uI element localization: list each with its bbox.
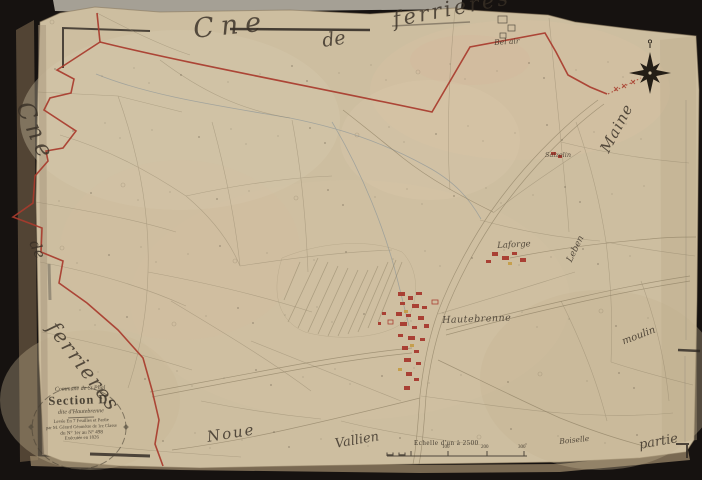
label-commune-left-word2: de <box>26 238 47 261</box>
scale-tick-200: 200 <box>481 445 489 450</box>
label-commune-top-word3: ferrieres <box>391 0 512 31</box>
label-neighbor-partie: partie <box>638 432 679 452</box>
label-commune-top-word1: Cne <box>192 8 269 43</box>
title-cartouche: Commune de St Phal Section D. dite d'Hau… <box>28 384 134 443</box>
scale-tick-100: 100 <box>442 445 450 450</box>
cadastral-map-scan: Cne de ferrieres Cne de ferrieres Maine … <box>0 0 702 480</box>
label-neighbor-moulin: moulin <box>621 326 657 348</box>
label-neighbor-maine: Maine <box>598 102 636 156</box>
label-place-saizelin: Saizelin <box>545 152 571 159</box>
label-neighbor-vallien: Vallien <box>334 430 380 451</box>
cartouche-section-title: Section D. <box>28 392 132 408</box>
label-place-bel-air: Bel air <box>494 37 520 46</box>
label-neighbor-noue: Noue <box>206 422 256 444</box>
label-place-laforge: Laforge <box>497 240 531 250</box>
map-labels: Cne de ferrieres Cne de ferrieres Maine … <box>0 0 702 480</box>
label-commune-left-word1: Cne <box>12 98 60 165</box>
label-neighbor-leben: Leben <box>566 235 586 264</box>
scale-tick-300: 300 <box>518 445 526 450</box>
label-commune-top-word2: de <box>321 29 347 51</box>
cartouche-subtitle: dite d'Hautebrenne <box>29 407 133 417</box>
label-place-hautebrenne: Hautebrenne <box>442 314 511 326</box>
label-neighbor-boiselle: Boiselle <box>559 435 590 446</box>
